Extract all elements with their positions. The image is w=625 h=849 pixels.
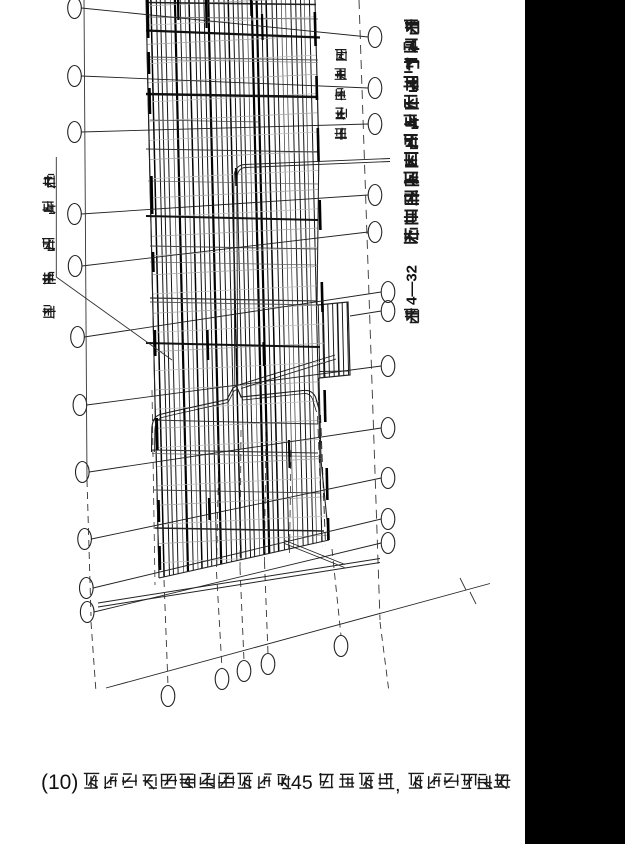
svg-text:45: 45 xyxy=(291,772,313,794)
svg-text:,: , xyxy=(395,774,401,796)
svg-text:(10): (10) xyxy=(41,771,78,794)
svg-text:4—32: 4—32 xyxy=(404,265,421,305)
